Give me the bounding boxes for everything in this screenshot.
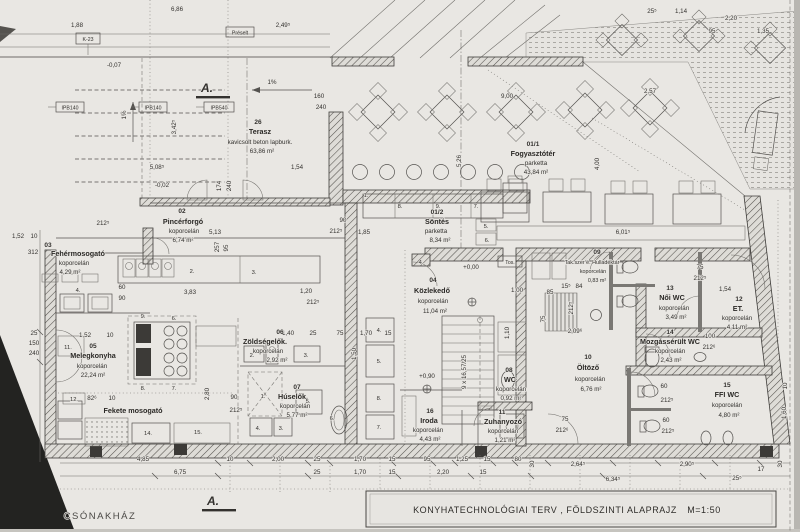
dim-label: 240 [226,180,233,191]
dim-label: 10 [107,332,114,339]
svg-text:15.: 15. [194,430,202,436]
dim-label: 90 [231,394,238,401]
dim-label: 2,09⁶ [568,328,583,335]
svg-text:14.: 14. [144,431,152,437]
svg-text:03: 03 [44,242,52,249]
svg-text:koporcelán: koporcelán [169,228,200,235]
dim-label: 9,00 [501,93,514,100]
svg-text:Préselt: Préselt [232,31,249,37]
boathouse-label: CSÓNAKHÁZ [64,511,137,522]
svg-text:4.: 4. [256,426,261,432]
svg-text:Mozgássérült WC: Mozgássérült WC [640,337,700,346]
svg-text:6,76 m²: 6,76 m² [581,386,602,393]
dim-label: 15 [389,469,396,476]
svg-text:2,43 m²: 2,43 m² [661,357,682,364]
svg-text:4,11 m²: 4,11 m² [727,324,748,331]
dim-label: 84 [576,283,583,290]
svg-text:3.: 3. [252,270,257,276]
room-label-fekete-mosogato: Fekete mosogató [103,406,163,415]
dim-label: 1,70 [360,330,373,337]
floorplan-sheet: 1,88 6,86 2,49⁵ -0,07 25⁵ 1,14 2,20 95 1… [0,0,800,532]
dim-label: 95 [223,244,230,251]
dim-label: 75 [540,315,547,322]
svg-text:koporcelán: koporcelán [253,348,284,355]
svg-text:Öltöző: Öltöző [577,363,600,372]
svg-text:6,74 m²: 6,74 m² [173,237,194,244]
dim-label: 1,35 [757,28,770,35]
dim-label: 75 [562,416,569,423]
svg-text:0,83 m²: 0,83 m² [588,278,606,284]
dim-label: 174 [216,180,223,191]
dim-label: 25⁵ [732,475,742,482]
dim-label: 212⁵ [307,299,320,306]
svg-text:Női WC: Női WC [659,293,685,302]
title-block: KONYHATECHNOLÓGIAI TERV , FÖLDSZINTI ALA… [366,491,776,527]
dim-label: 212⁵ [662,428,675,435]
dim-label: 15 [484,456,491,463]
svg-text:12.: 12. [70,397,78,403]
dim-label: 2,00 [272,456,285,463]
dim-label: 17 [758,466,765,473]
dim-label: 10 [227,456,234,463]
svg-text:koporcelán: koporcelán [659,305,690,312]
svg-text:8,34 m²: 8,34 m² [430,237,451,244]
dim-label: 150 [29,340,40,347]
dim-label: 2,57 [644,88,657,95]
dim-label: 25 [314,456,321,463]
svg-text:3.: 3. [279,426,284,432]
svg-text:4.: 4. [419,260,424,266]
svg-text:1,21 m²: 1,21 m² [495,437,516,444]
dim-label: 212⁵ [230,407,243,414]
svg-text:Közlekedő: Közlekedő [414,286,451,295]
dim-label: 240 [29,350,40,357]
dim-label: -0,07 [107,62,122,69]
dim-label: 1% [121,110,128,119]
dim-label: 90 [119,295,126,302]
svg-text:3,49 m²: 3,49 m² [666,314,687,321]
svg-text:A.: A. [206,494,219,508]
dim-label: 100 [705,333,716,340]
svg-text:2.: 2. [190,269,195,275]
dim-label: 30 [529,460,536,467]
svg-text:5.: 5. [306,399,311,405]
svg-text:koporcelán: koporcelán [712,402,743,409]
svg-text:4.: 4. [377,328,382,334]
svg-text:01/2: 01/2 [431,209,444,216]
dim-label: 240 [316,104,327,111]
svg-text:Húselők.: Húselők. [278,392,308,401]
dim-label: +0,90 [419,373,435,380]
dim-label: 1,88 [71,22,84,29]
dim-label: 2,49⁵ [276,22,291,29]
floorplan-drawing: 1,88 6,86 2,49⁵ -0,07 25⁵ 1,14 2,20 95 1… [0,0,800,532]
svg-text:Fogyasztótér: Fogyasztótér [511,149,556,158]
dim-label: 160 [314,93,325,100]
dim-label: 4,85 [137,456,150,463]
svg-text:kavicsolt beton lapburk.: kavicsolt beton lapburk. [228,139,293,146]
svg-text:0,92 m²: 0,92 m² [501,395,522,402]
svg-text:5,77 m²: 5,77 m² [287,412,308,419]
svg-text:63,86 m²: 63,86 m² [250,148,274,155]
dim-label: 90 [340,217,347,224]
dim-label: 1,50 [351,347,358,360]
svg-text:05: 05 [89,343,97,350]
svg-text:koporcelán: koporcelán [77,363,108,370]
svg-text:Tak.szer é. Hulladéktár: Tak.szer é. Hulladéktár [565,260,620,266]
dim-label: 80 [515,456,522,463]
svg-text:01/1: 01/1 [527,141,540,148]
dim-label: 60 [663,417,670,424]
dim-label: 312 [28,249,39,256]
svg-text:IPB540: IPB540 [210,106,227,112]
dim-label: 85 [547,289,554,296]
svg-text:K-23: K-23 [83,37,94,43]
dim-label: 5,13 [209,229,222,236]
dim-label: 1,54 [719,286,732,293]
dim-label: 212⁵ [694,275,707,282]
svg-text:13: 13 [666,285,674,292]
svg-text:22,24 m²: 22,24 m² [81,372,105,379]
svg-text:A.: A. [200,81,213,95]
svg-text:1.: 1. [261,394,266,400]
dim-label: 1% [268,79,277,86]
svg-text:WC: WC [504,375,516,384]
dim-label: 10 [782,382,789,389]
dim-label: 2,64⁵ [571,461,586,468]
dim-label: 1,00 [511,287,524,294]
dim-label: 75 [697,264,704,271]
dim-label: 2,90⁵ [680,461,695,468]
dim-label: 1,25 [456,456,469,463]
svg-text:8.: 8. [398,204,403,210]
dim-label: 25 [314,469,321,476]
svg-text:koporcelán: koporcelán [496,386,527,393]
svg-text:4,43 m²: 4,43 m² [420,436,441,443]
svg-text:koporcelán: koporcelán [413,427,444,434]
dim-label: 3,42⁵ [171,119,178,134]
dim-label: 6,01⁵ [616,229,631,236]
dim-label: 95 [709,28,716,35]
dim-label: 1,54 [291,164,304,171]
dim-label: 30 [777,460,784,467]
drawing-scale: M=1:50 [687,505,721,515]
dim-label: 6,34⁵ [606,476,621,483]
svg-text:09: 09 [593,249,601,256]
svg-text:4,80 m²: 4,80 m² [719,412,740,419]
svg-text:7.: 7. [474,204,479,210]
svg-text:2,92 m²: 2,92 m² [267,357,288,364]
dim-label: 95 [424,456,431,463]
dim-label: 60 [661,383,668,390]
dim-label: 15 [385,330,392,337]
svg-text:FFI WC: FFI WC [715,390,740,399]
svg-text:Terasz: Terasz [249,127,272,136]
svg-text:koporcelán: koporcelán [488,428,519,435]
svg-text:6.: 6. [485,238,490,244]
svg-text:5.: 5. [484,224,489,230]
dim-label: 1,14 [675,8,688,15]
dim-label: 257 [214,241,221,252]
dim-label: 212⁵ [330,228,343,235]
svg-text:Pincérforgó: Pincérforgó [163,217,204,226]
dim-label: 212⁶ [556,427,569,434]
svg-text:8.: 8. [377,396,382,402]
svg-text:parketta: parketta [425,228,448,235]
svg-text:9.: 9. [436,204,441,210]
svg-text:koporcelán: koporcelán [722,315,753,322]
svg-text:04: 04 [429,277,437,284]
dim-label: +0,00 [463,264,479,271]
dim-label: 1,10 [504,326,511,339]
svg-text:8.: 8. [141,386,146,392]
svg-text:02: 02 [178,208,186,215]
drawing-title: KONYHATECHNOLÓGIAI TERV , FÖLDSZINTI ALA… [413,505,677,515]
dim-label: 2,20 [437,469,450,476]
dim-label: 1,52 [12,233,25,240]
dim-label: 5,26 [456,154,463,167]
dim-label: 75 [337,330,344,337]
dim-label: 212⁵ [568,301,575,314]
svg-text:koporcelán: koporcelán [418,298,449,305]
svg-text:15: 15 [723,382,731,389]
svg-text:11: 11 [499,409,506,416]
dim-label: 1,70 [354,456,367,463]
svg-text:koporcelán: koporcelán [59,260,90,267]
dim-label: 15⁵ [561,283,571,290]
dim-label: 25 [310,330,317,337]
dim-label: 212⁶ [703,344,716,351]
dim-label: 1,70 [354,469,367,476]
svg-text:08: 08 [505,367,513,374]
svg-text:parketta: parketta [525,160,548,167]
svg-text:6.: 6. [172,316,177,322]
svg-text:4,29 m²: 4,29 m² [60,269,81,276]
svg-text:IPB140: IPB140 [144,106,161,112]
dim-label: 1,20 [300,288,313,295]
svg-text:koporcelán: koporcelán [655,348,686,355]
dim-label: -0,02 [155,182,170,189]
dim-label: 82⁶ [87,395,97,402]
svg-text:1.: 1. [364,193,369,199]
svg-text:Zuhanyozó: Zuhanyozó [484,417,523,426]
dim-label: 25 [31,330,38,337]
dim-label: 1,52 [79,332,92,339]
svg-text:16: 16 [426,408,434,415]
svg-text:12: 12 [735,296,743,303]
svg-text:koporcelán: koporcelán [580,269,606,275]
dim-label: 15 [389,456,396,463]
svg-text:4.: 4. [76,288,81,294]
svg-text:9.: 9. [141,314,146,320]
svg-text:2.: 2. [250,353,255,359]
svg-text:11.: 11. [64,345,72,351]
dim-label: 3,83 [184,289,197,296]
dim-label: 6,75 [174,469,187,476]
svg-text:Zöldségelők.: Zöldségelők. [243,337,287,346]
dim-label: 15 [480,469,487,476]
dim-label: 60 [119,284,126,291]
dim-label: 212⁵ [661,397,674,404]
svg-text:14: 14 [666,329,674,336]
svg-text:10: 10 [584,354,592,361]
dim-label: 2,20 [725,15,738,22]
dim-label: 1,60 [781,406,788,419]
svg-text:Iroda: Iroda [420,416,439,425]
dim-label: 2,80 [204,387,211,400]
svg-text:26: 26 [254,119,262,126]
svg-text:43,84 m²: 43,84 m² [524,169,548,176]
svg-text:6.: 6. [330,416,335,422]
svg-text:Fehérmosogató: Fehérmosogató [51,249,106,258]
dim-label: 25⁵ [647,8,657,15]
svg-text:06: 06 [276,329,284,336]
dim-label: 1,40 [282,330,295,337]
dim-label: 6,86 [171,6,184,13]
dim-label: 1,85 [358,229,371,236]
svg-text:Söntés: Söntés [425,217,449,226]
dim-label: 9 x 16,57/25 [461,354,468,389]
svg-text:Fekete mosogató: Fekete mosogató [103,406,163,415]
svg-text:11,04 m²: 11,04 m² [423,308,447,315]
dim-label: 4,00 [594,157,601,170]
svg-text:ET.: ET. [733,304,743,313]
svg-text:07: 07 [293,384,301,391]
svg-text:Tos.: Tos. [505,260,515,266]
svg-text:IPB140: IPB140 [61,106,78,112]
svg-text:5.: 5. [377,359,382,365]
svg-text:7.: 7. [172,386,177,392]
svg-text:koporcelán: koporcelán [575,376,606,383]
svg-text:Melegkonyha: Melegkonyha [70,351,117,360]
svg-text:7.: 7. [377,425,382,431]
dim-label: 10 [31,233,38,240]
dim-label: 5,08⁵ [150,164,165,171]
svg-text:3.: 3. [304,353,309,359]
dim-label: 212⁵ [97,220,110,227]
dim-label: 10 [109,395,116,402]
